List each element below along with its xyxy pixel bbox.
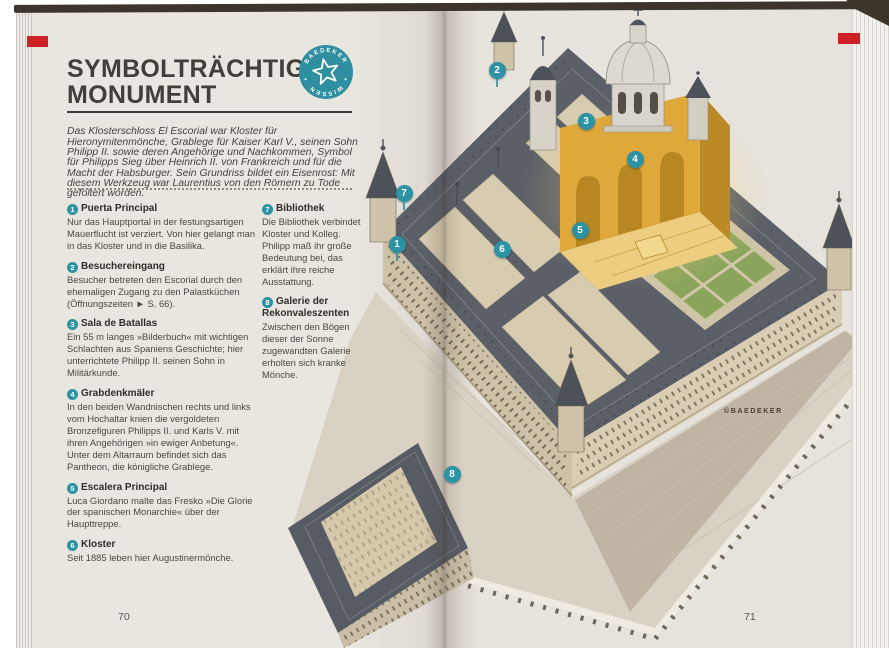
diagram-marker-2: 2 (489, 62, 506, 79)
item-title: 2Besuchereingang (67, 261, 257, 273)
item-title-text: Bibliothek (276, 203, 324, 214)
item-title: 6Kloster (67, 539, 257, 551)
marker-number: 6 (499, 244, 505, 255)
bell-tower (530, 36, 556, 150)
red-bookmark-left (27, 36, 48, 47)
list-item: 2Besuchereingang Besucher betreten den E… (67, 261, 257, 310)
page-number-right: 71 (744, 611, 756, 623)
item-number-badge: 5 (67, 483, 78, 494)
item-title: 8Galerie der Rekonvaleszenten (262, 296, 363, 320)
illustration-credit: ©BAEDEKER (724, 408, 783, 415)
marker-number: 7 (401, 188, 407, 199)
marker-number: 2 (494, 65, 500, 76)
basilica-cutaway (520, 5, 770, 290)
marker-number: 5 (577, 225, 583, 236)
item-number-badge: 6 (67, 540, 78, 551)
item-text: Nur das Hauptportal in der festungsartig… (67, 216, 257, 252)
legend-column-2: 7Bibliothek Die Bibliothek verbindet Klo… (262, 203, 363, 390)
book-spread-photo: SYMBOLTRÄCHTIGES MONUMENT BAEDEKER WISSE… (0, 0, 889, 648)
diagram-marker-8: 8 (444, 466, 461, 483)
item-title-text: Puerta Principal (81, 203, 157, 214)
item-text: Zwischen den Bögen dieser der Sonne zuge… (262, 321, 363, 381)
item-title-text: Escalera Principal (81, 482, 167, 493)
item-text: In den beiden Wandnischen rechts und lin… (67, 401, 257, 472)
list-item: 8Galerie der Rekonvaleszenten Zwischen d… (262, 296, 363, 381)
item-title-text: Galerie der Rekonvaleszenten (262, 296, 349, 319)
item-title: 4Grabdenkmäler (67, 388, 257, 400)
item-number-badge: 1 (67, 204, 78, 215)
item-title-text: Kloster (81, 539, 115, 550)
badge-diamond-right: ✦ (344, 77, 348, 83)
item-text: Die Bibliothek verbindet Kloster und Kol… (262, 216, 363, 287)
diagram-marker-1: 1 (389, 236, 406, 253)
dome (604, 5, 672, 132)
item-title: 5Escalera Principal (67, 482, 257, 494)
marker-number: 1 (394, 239, 400, 250)
item-text: Luca Giordano malte das Fresko »Die Glor… (67, 495, 257, 531)
list-item: 5Escalera Principal Luca Giordano malte … (67, 482, 257, 531)
item-number-badge: 7 (262, 204, 273, 215)
item-text: Ein 55 m langes »Bilderbuch« mit wichtig… (67, 331, 257, 379)
item-title: 7Bibliothek (262, 203, 363, 215)
item-title: 1Puerta Principal (67, 203, 257, 215)
diagram-marker-5: 5 (572, 222, 589, 239)
list-item: 7Bibliothek Die Bibliothek verbindet Klo… (262, 203, 363, 287)
intro-divider-dotted (67, 188, 352, 190)
item-title-text: Grabdenkmäler (81, 388, 154, 399)
badge-diamond-left: ✦ (304, 77, 308, 83)
item-text: Seit 1885 leben hier Augustinermönche. (67, 552, 257, 564)
book-gutter (424, 8, 464, 648)
item-title-text: Sala de Batallas (81, 318, 157, 329)
diagram-marker-7: 7 (396, 185, 413, 202)
list-item: 4Grabdenkmäler In den beiden Wandnischen… (67, 388, 257, 472)
page-number-left: 70 (118, 611, 130, 623)
marker-number: 3 (583, 116, 589, 127)
list-item: 1Puerta Principal Nur das Hauptportal in… (67, 203, 257, 252)
rear-tower (685, 71, 711, 140)
item-title: 3Sala de Batallas (67, 318, 257, 330)
diagram-marker-4: 4 (627, 151, 644, 168)
diagram-marker-6: 6 (494, 241, 511, 258)
marker-number: 8 (449, 469, 455, 480)
item-title-text: Besuchereingang (81, 261, 165, 272)
item-number-badge: 4 (67, 389, 78, 400)
item-number-badge: 8 (262, 297, 273, 308)
page-edges-right (852, 10, 889, 648)
red-bookmark-right (838, 33, 860, 44)
list-item: 6Kloster Seit 1885 leben hier Augustiner… (67, 539, 257, 564)
list-item: 3Sala de Batallas Ein 55 m langes »Bilde… (67, 318, 257, 379)
item-number-badge: 2 (67, 262, 78, 273)
baedeker-wissen-badge: BAEDEKER WISSEN ✦ ✦ (297, 43, 355, 101)
item-text: Besucher betreten den Escorial durch den… (67, 274, 257, 310)
title-divider (67, 111, 352, 113)
page-edges-left (16, 8, 32, 648)
legend-column-1: 1Puerta Principal Nur das Hauptportal in… (67, 203, 257, 573)
diagram-marker-3: 3 (578, 113, 595, 130)
item-number-badge: 3 (67, 319, 78, 330)
marker-number: 4 (632, 154, 638, 165)
